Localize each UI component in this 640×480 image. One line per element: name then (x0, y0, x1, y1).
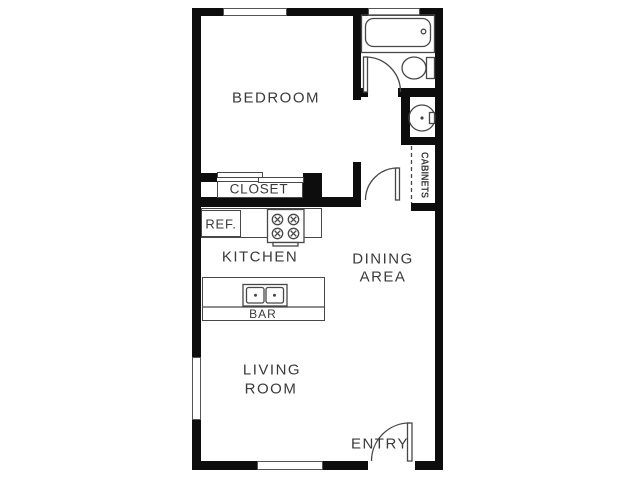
bar-sink-drain-right (273, 294, 276, 297)
toilet-tank-icon (427, 58, 435, 79)
stove-base (273, 243, 298, 247)
room-label-entry: ENTRY (351, 436, 409, 453)
bathroom-door-swing-icon (366, 57, 401, 92)
bathroom-door-leaf-icon (364, 57, 368, 92)
fixtures-layer (0, 0, 640, 480)
toilet-icon (402, 57, 426, 79)
label-cabinets: CABINETS (419, 152, 430, 198)
label-bar: BAR (249, 307, 277, 321)
hall-door-swing-icon (366, 168, 398, 200)
room-label-dining-line2: AREA (360, 269, 407, 286)
room-label-living-line2: ROOM (245, 381, 298, 398)
bar-sink-drain-left (254, 294, 257, 297)
sink-faucet-icon (430, 113, 435, 124)
room-label-bedroom: BEDROOM (232, 90, 320, 107)
hall-door-leaf-icon (396, 168, 400, 200)
room-label-dining-line1: DINING (352, 251, 414, 268)
label-refrigerator: REF. (205, 217, 236, 232)
floor-plan: BEDROOM CLOSET REF. KITCHEN DINING AREA … (0, 0, 640, 480)
sink-drain-icon (420, 116, 423, 119)
four-burner-stove-icon (268, 210, 305, 243)
tub-drain-icon (421, 29, 426, 34)
room-label-living-line1: LIVING (243, 362, 301, 379)
room-label-closet: CLOSET (230, 182, 289, 197)
room-label-kitchen: KITCHEN (222, 249, 298, 266)
